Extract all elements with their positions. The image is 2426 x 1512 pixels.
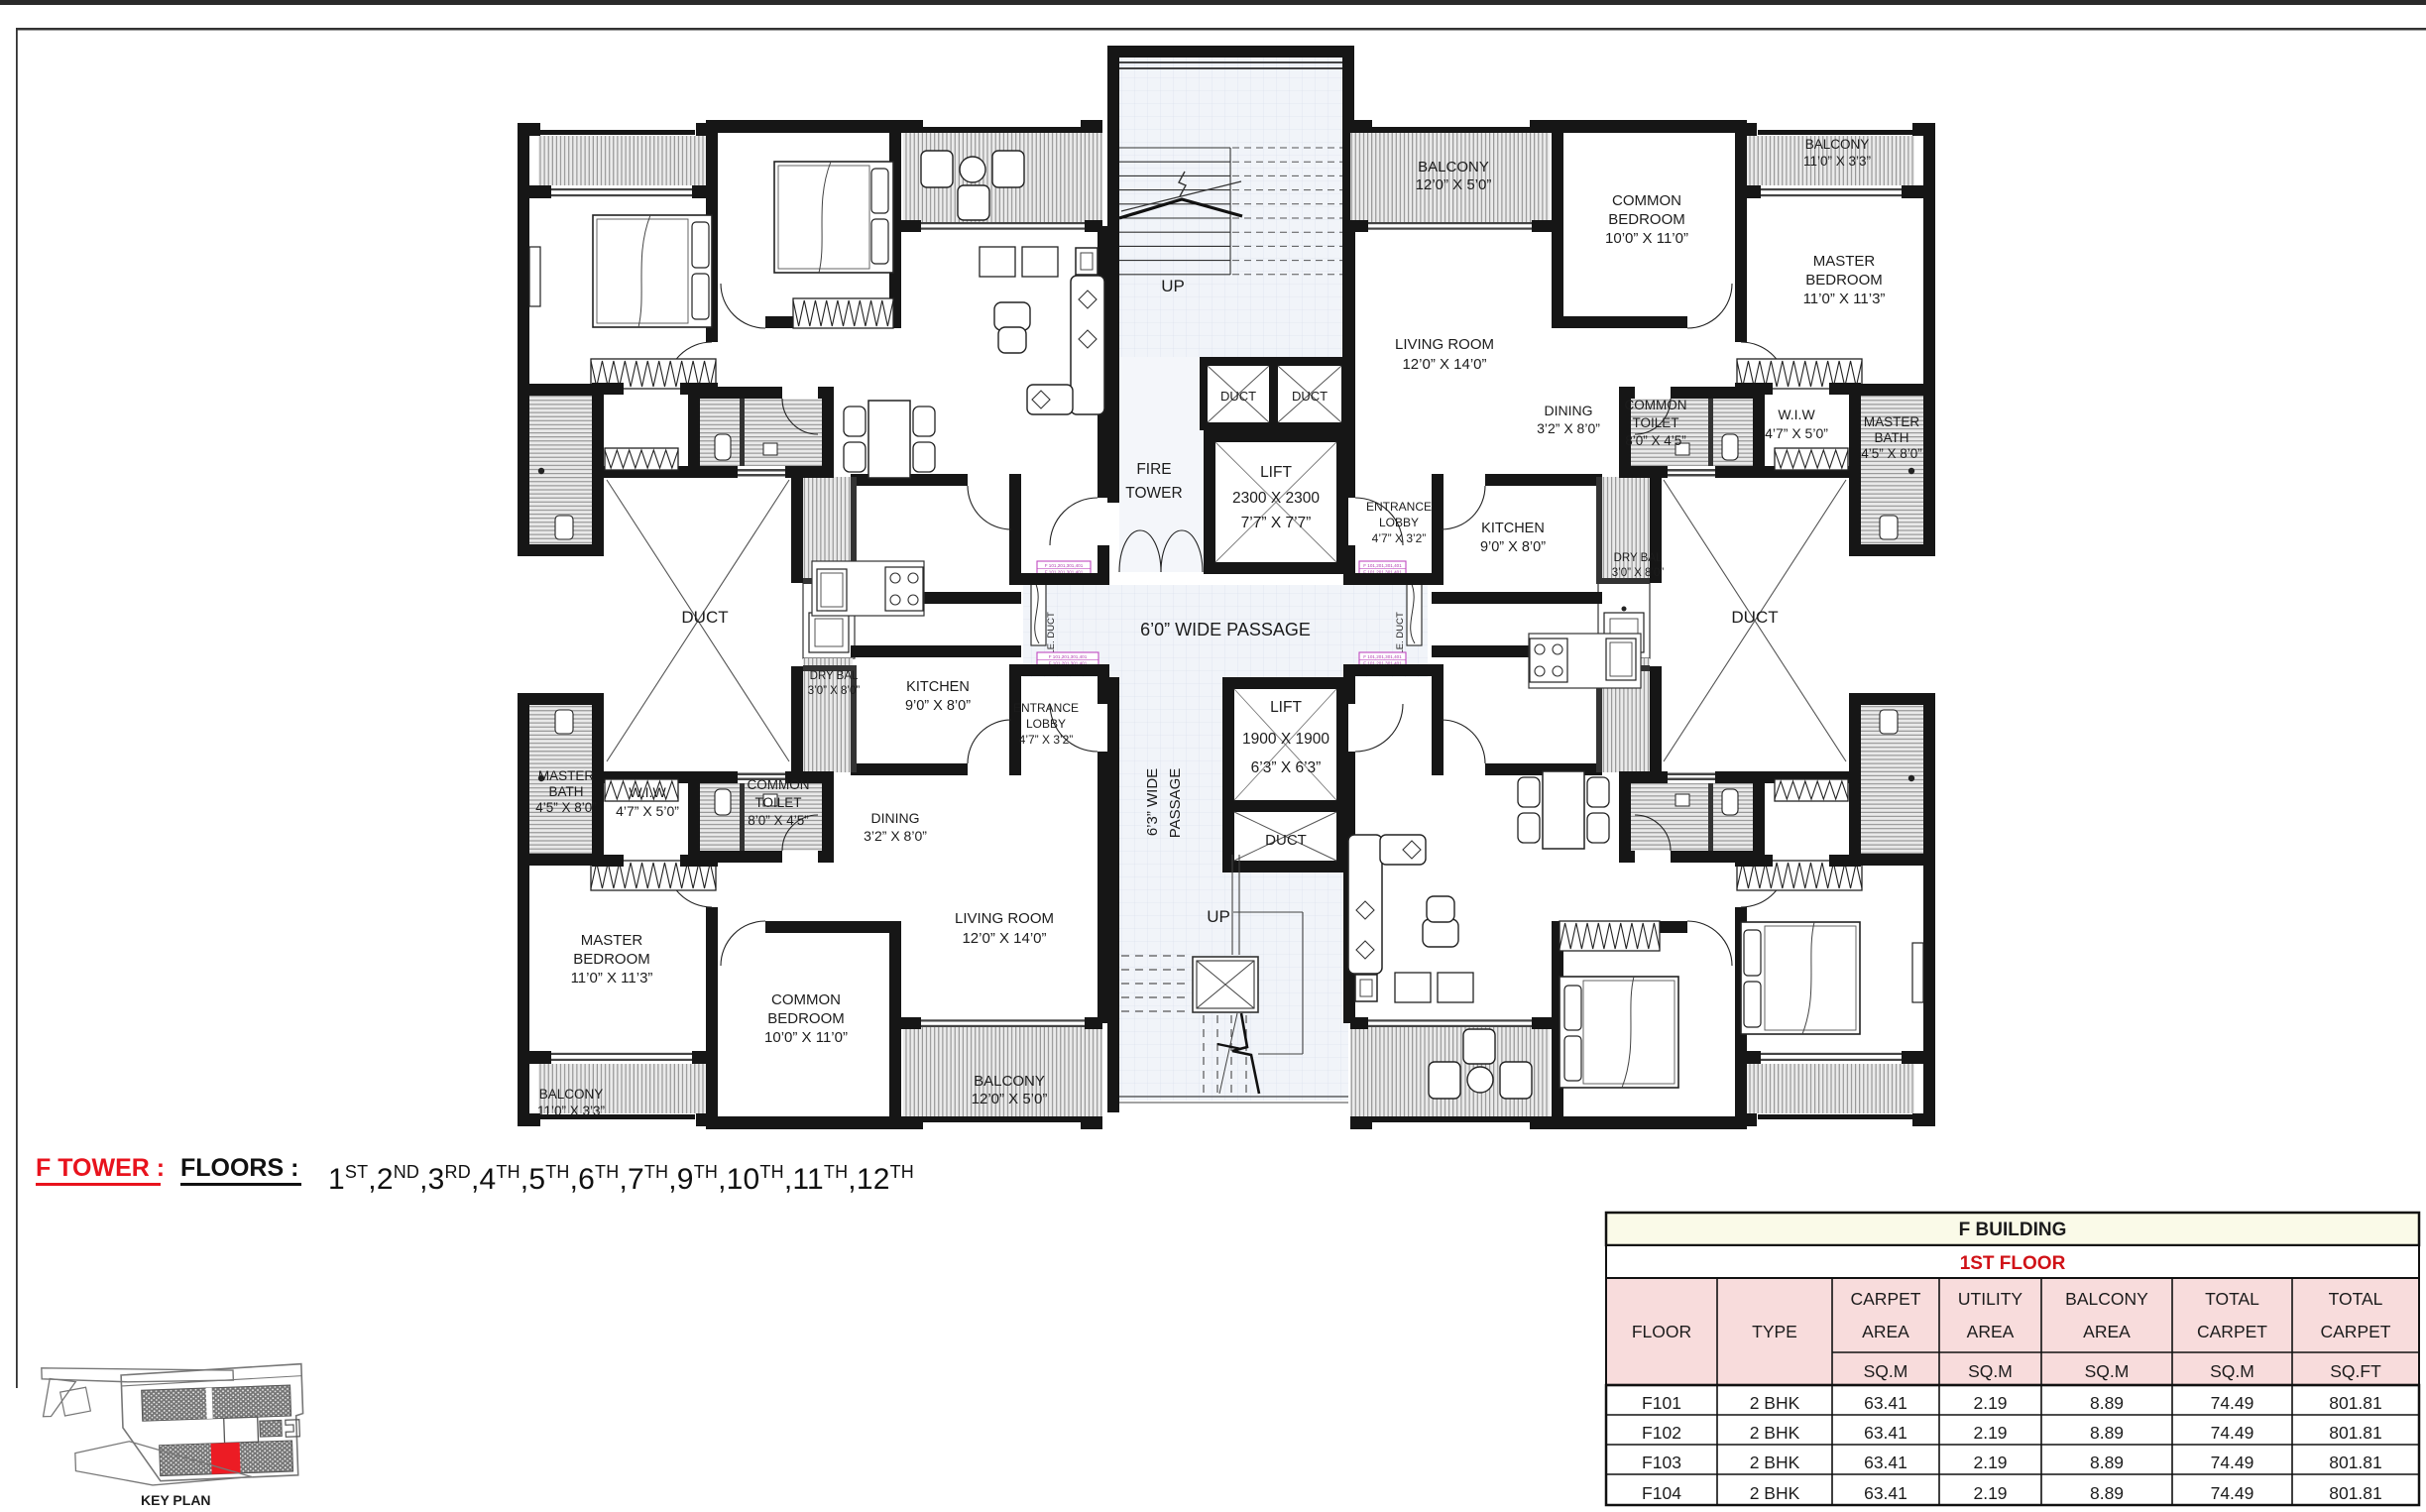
- svg-text:DINING: DINING: [1545, 403, 1593, 418]
- svg-text:801.81: 801.81: [2329, 1423, 2382, 1443]
- svg-text:4’7” X 3’2”: 4’7” X 3’2”: [1019, 733, 1074, 747]
- svg-text:TOILET: TOILET: [1632, 415, 1678, 430]
- svg-text:9’0” X 8’0”: 9’0” X 8’0”: [905, 698, 971, 714]
- svg-text:TOILET: TOILET: [754, 795, 801, 810]
- svg-text:2.19: 2.19: [1973, 1423, 2007, 1443]
- svg-text:BALCONY: BALCONY: [974, 1073, 1045, 1090]
- svg-text:BALCONY: BALCONY: [539, 1087, 604, 1102]
- svg-text:DUCT: DUCT: [1292, 389, 1328, 404]
- svg-text:UP: UP: [1161, 277, 1185, 295]
- svg-text:CARPET: CARPET: [1851, 1289, 1921, 1309]
- svg-text:COMMON: COMMON: [771, 991, 841, 1008]
- svg-text:UTILITY: UTILITY: [1958, 1289, 2022, 1309]
- svg-text:10’0” X 11’0”: 10’0” X 11’0”: [1605, 230, 1688, 247]
- svg-text:74.49: 74.49: [2211, 1423, 2254, 1443]
- svg-text:F 101,201,301,401: F 101,201,301,401: [1049, 654, 1088, 659]
- svg-text:TYPE: TYPE: [1752, 1322, 1797, 1341]
- svg-text:BEDROOM: BEDROOM: [1805, 272, 1883, 289]
- svg-text:FLOORS :: FLOORS :: [180, 1154, 298, 1182]
- svg-text:COMMON: COMMON: [1625, 398, 1687, 412]
- svg-text:63.41: 63.41: [1864, 1393, 1907, 1413]
- svg-text:DUCT: DUCT: [1265, 832, 1307, 849]
- svg-text:74.49: 74.49: [2211, 1393, 2254, 1413]
- svg-text:KITCHEN: KITCHEN: [1481, 521, 1545, 536]
- svg-text:AREA: AREA: [1967, 1322, 2015, 1341]
- svg-text:LIVING ROOM: LIVING ROOM: [1395, 336, 1494, 353]
- svg-text:SQ.FT: SQ.FT: [2330, 1361, 2381, 1381]
- svg-text:6’3” WIDE: 6’3” WIDE: [1144, 768, 1161, 836]
- svg-text:8.89: 8.89: [2090, 1393, 2124, 1413]
- svg-text:W.I.W: W.I.W: [1778, 407, 1815, 422]
- svg-text:63.41: 63.41: [1864, 1453, 1907, 1472]
- svg-text:11’0” X 11’3”: 11’0” X 11’3”: [1803, 291, 1886, 307]
- svg-text:F102: F102: [1642, 1423, 1681, 1443]
- svg-text:COMMON: COMMON: [748, 777, 810, 792]
- svg-text:UP: UP: [1207, 907, 1230, 926]
- svg-text:F BUILDING: F BUILDING: [1959, 1220, 2067, 1240]
- svg-text:2.19: 2.19: [1973, 1453, 2007, 1472]
- svg-text:7’7” X 7’7”: 7’7” X 7’7”: [1241, 515, 1312, 531]
- svg-text:AREA: AREA: [1862, 1322, 1909, 1341]
- svg-text:LOBBY: LOBBY: [1026, 717, 1066, 731]
- svg-text:BALCONY: BALCONY: [2065, 1289, 2148, 1309]
- svg-text:2 BHK: 2 BHK: [1750, 1393, 1800, 1413]
- svg-text:F103: F103: [1642, 1453, 1681, 1472]
- svg-text:4’5” X 8’0”: 4’5” X 8’0”: [1861, 446, 1922, 461]
- svg-text:ENTRANCE: ENTRANCE: [1366, 500, 1432, 514]
- svg-text:8.89: 8.89: [2090, 1453, 2124, 1472]
- svg-text:12’0” X 5’0”: 12’0” X 5’0”: [972, 1091, 1048, 1107]
- svg-text:W.I.W: W.I.W: [629, 784, 666, 800]
- svg-text:CARPET: CARPET: [2197, 1322, 2267, 1341]
- svg-text:12’0” X 14’0”: 12’0” X 14’0”: [962, 930, 1046, 947]
- svg-text:BEDROOM: BEDROOM: [767, 1010, 845, 1027]
- svg-text:4’7” X 5’0”: 4’7” X 5’0”: [1765, 425, 1828, 441]
- svg-text:801.81: 801.81: [2329, 1453, 2382, 1472]
- svg-text:3’2” X 8’0”: 3’2” X 8’0”: [864, 828, 927, 844]
- svg-text:1900 X 1900: 1900 X 1900: [1242, 731, 1329, 748]
- svg-text:BATH: BATH: [1874, 430, 1908, 445]
- svg-text:MASTER: MASTER: [1813, 253, 1876, 270]
- svg-text:LIFT: LIFT: [1270, 699, 1302, 716]
- svg-text:74.49: 74.49: [2211, 1453, 2254, 1472]
- svg-text:8.89: 8.89: [2090, 1483, 2124, 1503]
- svg-text:4’5” X 8’0”: 4’5” X 8’0”: [535, 800, 597, 815]
- svg-text:MASTER: MASTER: [581, 932, 643, 949]
- svg-text:DINING: DINING: [871, 810, 920, 826]
- svg-text:9’0” X 8’0”: 9’0” X 8’0”: [1480, 539, 1546, 555]
- svg-text:BEDROOM: BEDROOM: [573, 951, 650, 968]
- svg-text:2 BHK: 2 BHK: [1750, 1483, 1800, 1503]
- svg-text:CARPET: CARPET: [2321, 1322, 2391, 1341]
- svg-text:12’0” X 14’0”: 12’0” X 14’0”: [1402, 356, 1486, 373]
- svg-text:SQ.M: SQ.M: [2085, 1361, 2130, 1381]
- svg-text:KEY PLAN: KEY PLAN: [141, 1492, 211, 1508]
- svg-text:BATH: BATH: [548, 784, 583, 799]
- svg-text:DRY BAL: DRY BAL: [1614, 552, 1663, 564]
- svg-text:BEDROOM: BEDROOM: [1608, 211, 1685, 228]
- svg-text:12’0” X 5’0”: 12’0” X 5’0”: [1416, 176, 1492, 193]
- svg-text:2 BHK: 2 BHK: [1750, 1423, 1800, 1443]
- svg-text:MASTER: MASTER: [538, 768, 595, 783]
- svg-text:F104: F104: [1642, 1483, 1681, 1503]
- svg-text:1ST FLOOR: 1ST FLOOR: [1960, 1253, 2066, 1274]
- svg-text:8’0” X 4’5”: 8’0” X 4’5”: [748, 813, 809, 828]
- svg-text:3’0” X 8’0”: 3’0” X 8’0”: [1612, 567, 1665, 579]
- svg-text:COMMON: COMMON: [1612, 192, 1681, 209]
- svg-text:TOTAL: TOTAL: [2205, 1289, 2259, 1309]
- svg-text:4’7” X 3’2”: 4’7” X 3’2”: [1372, 531, 1427, 545]
- svg-text:DRY BAL: DRY BAL: [810, 670, 859, 682]
- svg-text:KITCHEN: KITCHEN: [906, 679, 970, 695]
- svg-text:2.19: 2.19: [1973, 1393, 2007, 1413]
- svg-text:SQ.M: SQ.M: [1968, 1361, 2013, 1381]
- svg-text:LIFT: LIFT: [1260, 464, 1292, 481]
- svg-text:63.41: 63.41: [1864, 1423, 1907, 1443]
- svg-text:6’3” X 6’3”: 6’3” X 6’3”: [1251, 759, 1322, 776]
- svg-text:8.89: 8.89: [2090, 1423, 2124, 1443]
- svg-text:6’0” WIDE PASSAGE: 6’0” WIDE PASSAGE: [1140, 620, 1311, 640]
- svg-text:SQ.M: SQ.M: [2210, 1361, 2254, 1381]
- svg-text:LOBBY: LOBBY: [1379, 516, 1419, 529]
- svg-text:FLOOR: FLOOR: [1632, 1322, 1691, 1341]
- svg-text:801.81: 801.81: [2329, 1483, 2382, 1503]
- svg-text:TOWER: TOWER: [1125, 485, 1182, 502]
- svg-text:F 101,201,301,401: F 101,201,301,401: [1363, 563, 1402, 568]
- svg-text:801.81: 801.81: [2329, 1393, 2382, 1413]
- svg-text:LIVING ROOM: LIVING ROOM: [955, 910, 1054, 927]
- svg-text:F 101,201,301,401: F 101,201,301,401: [1045, 563, 1084, 568]
- svg-text:11’0” X 11’3”: 11’0” X 11’3”: [571, 970, 653, 987]
- svg-text:F101: F101: [1642, 1393, 1681, 1413]
- svg-text:DUCT: DUCT: [681, 608, 728, 627]
- svg-text:ENTRANCE: ENTRANCE: [1013, 701, 1079, 715]
- svg-text:DUCT: DUCT: [1220, 389, 1256, 404]
- svg-text:4’7” X 5’0”: 4’7” X 5’0”: [616, 803, 679, 819]
- svg-text:BALCONY: BALCONY: [1805, 137, 1870, 152]
- svg-text:PASSAGE: PASSAGE: [1167, 768, 1184, 839]
- svg-text:63.41: 63.41: [1864, 1483, 1907, 1503]
- svg-text:BALCONY: BALCONY: [1418, 159, 1489, 175]
- svg-text:74.49: 74.49: [2211, 1483, 2254, 1503]
- svg-text:3’0” X 8’0”: 3’0” X 8’0”: [808, 685, 861, 697]
- svg-text:DUCT: DUCT: [1731, 608, 1778, 627]
- svg-text:10’0” X 11’0”: 10’0” X 11’0”: [764, 1029, 848, 1046]
- svg-text:11’0” X 3’3”: 11’0” X 3’3”: [1803, 154, 1871, 169]
- svg-text:TOTAL: TOTAL: [2329, 1289, 2383, 1309]
- svg-text:SQ.M: SQ.M: [1864, 1361, 1908, 1381]
- svg-text:MASTER: MASTER: [1864, 414, 1920, 429]
- svg-text:2.19: 2.19: [1973, 1483, 2007, 1503]
- svg-text:2 BHK: 2 BHK: [1750, 1453, 1800, 1472]
- svg-text:2300 X 2300: 2300 X 2300: [1232, 490, 1320, 507]
- svg-text:F 101,201,301,401: F 101,201,301,401: [1363, 654, 1402, 659]
- svg-text:3’2” X 8’0”: 3’2” X 8’0”: [1537, 420, 1600, 436]
- svg-text:FIRE: FIRE: [1136, 461, 1171, 478]
- svg-text:8’0” X 4’5”: 8’0” X 4’5”: [1625, 433, 1686, 448]
- svg-text:AREA: AREA: [2083, 1322, 2131, 1341]
- svg-text:11’0” X 3’3”: 11’0” X 3’3”: [537, 1104, 605, 1118]
- svg-text:F TOWER :: F TOWER :: [36, 1154, 165, 1182]
